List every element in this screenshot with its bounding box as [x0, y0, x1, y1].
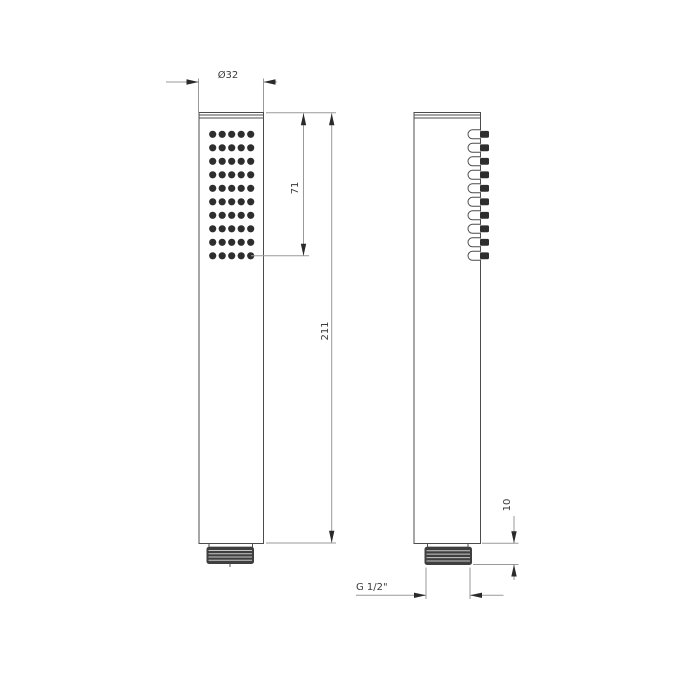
nozzle-dot — [247, 225, 254, 232]
dimension-arrowhead — [329, 531, 334, 543]
nozzle-base — [468, 224, 481, 233]
nozzle-dot — [219, 144, 226, 151]
front-view — [199, 113, 264, 568]
dimension-arrowhead — [301, 244, 306, 256]
nozzle-dot — [209, 144, 216, 151]
nozzle-tip — [480, 225, 489, 232]
thread-spec-label: G 1/2" — [356, 582, 388, 593]
nozzle-dot — [228, 171, 235, 178]
nozzle-dot — [219, 225, 226, 232]
nozzle-base — [468, 130, 481, 139]
nozzle-dot — [238, 198, 245, 205]
nozzle-tip — [480, 144, 489, 151]
nozzle-base — [468, 184, 481, 193]
nozzle-dot — [247, 171, 254, 178]
nozzle-dot — [219, 185, 226, 192]
nozzle-dot — [238, 252, 245, 259]
nozzle-base — [468, 251, 480, 260]
thread-block — [425, 547, 472, 564]
side-view — [414, 113, 489, 565]
nozzle-dot — [219, 239, 226, 246]
nozzle-dot — [238, 239, 245, 246]
face-length-dimension-label: 71 — [290, 182, 301, 195]
nozzle-base — [468, 170, 481, 179]
dimension-arrowhead — [264, 79, 276, 84]
nozzle-dot — [247, 158, 254, 165]
nozzle-dot — [209, 198, 216, 205]
nozzle-tip — [480, 131, 489, 138]
nozzle-tip — [480, 171, 489, 178]
nozzle-tip — [480, 212, 489, 219]
nozzle-dot — [228, 239, 235, 246]
nozzle-base — [468, 211, 481, 220]
nozzle-dot — [238, 225, 245, 232]
thread-block — [207, 547, 254, 563]
nozzle-dot — [219, 198, 226, 205]
nozzle-tip — [480, 252, 489, 259]
nozzle-dot — [247, 144, 254, 151]
nozzle-tip — [480, 198, 489, 205]
nozzle-dot — [209, 212, 216, 219]
nozzle-dot — [209, 239, 216, 246]
dimension-arrowhead — [414, 593, 426, 598]
dimension-arrowhead — [329, 113, 334, 125]
nozzle-dot — [238, 171, 245, 178]
nozzle-tip — [480, 158, 489, 165]
nozzle-dot — [228, 131, 235, 138]
nozzle-dot — [228, 212, 235, 219]
nozzle-dot — [219, 252, 226, 259]
nozzle-base — [468, 143, 480, 152]
nozzle-dot — [219, 158, 226, 165]
nozzle-base — [468, 197, 481, 206]
nozzle-dot — [238, 158, 245, 165]
thread-length-dimension-label: 10 — [502, 499, 513, 512]
diameter-dimension-label: Ø32 — [218, 69, 239, 81]
nozzle-dot — [219, 212, 226, 219]
dimension-arrowhead — [511, 531, 516, 543]
dimension-arrowhead — [470, 593, 482, 598]
dimension-arrowhead — [187, 79, 199, 84]
nozzle-dot — [238, 131, 245, 138]
hand-shower-dimension-drawing: Ø32 71 211 10 G 1/2" — [0, 0, 700, 700]
nozzle-dot — [209, 171, 216, 178]
front-collar — [209, 544, 253, 548]
nozzle-dot — [209, 158, 216, 165]
nozzle-dot — [238, 144, 245, 151]
nozzle-tip — [480, 185, 489, 192]
nozzle-dot — [209, 185, 216, 192]
nozzle-dot — [209, 252, 216, 259]
nozzle-dot — [247, 131, 254, 138]
nozzle-base — [468, 238, 481, 247]
nozzle-dot — [219, 131, 226, 138]
nozzle-dot — [228, 198, 235, 205]
nozzle-tip — [480, 239, 489, 246]
dimension-arrowhead — [301, 113, 306, 125]
technical-drawing-canvas: Ø32 71 211 10 G 1/2" — [0, 0, 700, 700]
nozzle-dot — [247, 198, 254, 205]
nozzle-dot — [247, 185, 254, 192]
side-collar — [428, 544, 469, 548]
nozzle-dot — [228, 158, 235, 165]
nozzle-dot — [228, 185, 235, 192]
nozzle-dot — [247, 212, 254, 219]
nozzle-dot — [228, 144, 235, 151]
total-length-dimension-label: 211 — [320, 321, 331, 340]
nozzle-dot — [228, 225, 235, 232]
nozzle-dot — [247, 239, 254, 246]
dimension-diameter — [166, 79, 277, 113]
nozzle-dot — [219, 171, 226, 178]
nozzle-dot — [238, 212, 245, 219]
nozzle-dot — [209, 225, 216, 232]
nozzle-dot — [228, 252, 235, 259]
nozzle-dot — [209, 131, 216, 138]
nozzle-base — [468, 157, 481, 166]
dimension-arrowhead — [511, 565, 516, 577]
nozzle-dot — [238, 185, 245, 192]
